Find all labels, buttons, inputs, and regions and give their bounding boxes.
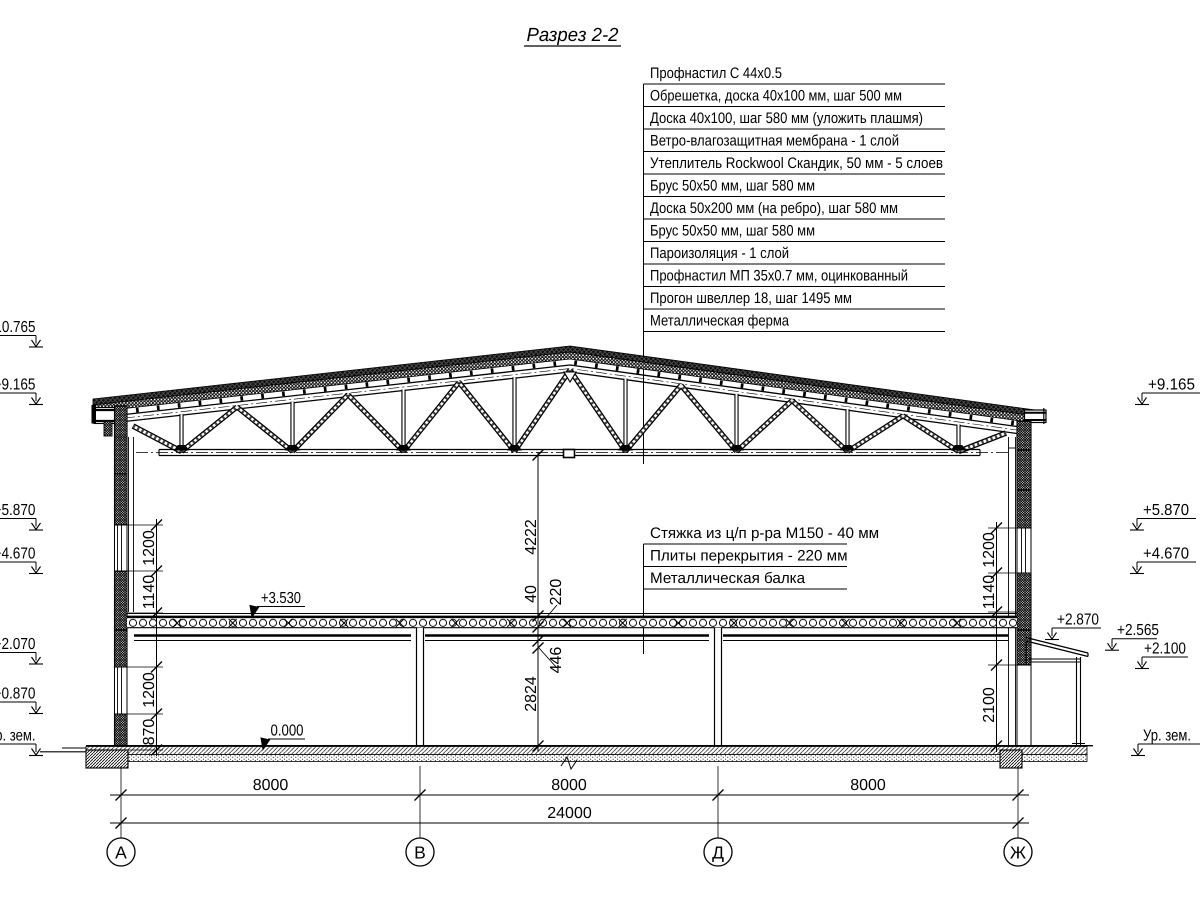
- svg-text:Утеплитель Rockwool Скандик, 5: Утеплитель Rockwool Скандик, 50 мм - 5 с…: [650, 155, 943, 172]
- svg-text:Разрез 2-2: Разрез 2-2: [527, 25, 619, 46]
- svg-text:Профнастил МП 35х0.7 мм, оцинк: Профнастил МП 35х0.7 мм, оцинкованный: [650, 268, 908, 285]
- svg-text:2824: 2824: [523, 676, 540, 712]
- svg-text:1200: 1200: [141, 672, 158, 708]
- svg-text:220: 220: [548, 579, 565, 606]
- svg-text:Обрешетка, доска 40х100 мм, ша: Обрешетка, доска 40х100 мм, шаг 500 мм: [650, 88, 902, 105]
- svg-text:1200: 1200: [981, 532, 998, 568]
- svg-text:446: 446: [548, 647, 565, 674]
- svg-text:Ветро-влагозащитная мембрана -: Ветро-влагозащитная мембрана - 1 слой: [650, 133, 899, 150]
- svg-text:Доска 40х100, шаг 580 мм (улож: Доска 40х100, шаг 580 мм (уложить плашмя…: [650, 110, 923, 127]
- svg-text:Ж: Ж: [1010, 843, 1026, 863]
- svg-text:+0.870: +0.870: [0, 686, 36, 703]
- svg-text:40: 40: [523, 585, 540, 603]
- svg-text:Плиты перекрытия - 220 мм: Плиты перекрытия - 220 мм: [650, 548, 848, 565]
- svg-text:+2.565: +2.565: [1117, 622, 1159, 639]
- svg-text:Брус 50х50 мм, шаг 580 мм: Брус 50х50 мм, шаг 580 мм: [650, 223, 815, 240]
- svg-text:Брус 50х50 мм, шаг 580 мм: Брус 50х50 мм, шаг 580 мм: [650, 178, 815, 195]
- svg-text:В: В: [414, 843, 426, 863]
- svg-text:24000: 24000: [547, 805, 592, 822]
- svg-text:8000: 8000: [850, 777, 886, 794]
- svg-text:Профнастил С 44х0.5: Профнастил С 44х0.5: [650, 65, 782, 82]
- svg-text:+5.870: +5.870: [0, 502, 36, 519]
- svg-text:Д: Д: [712, 843, 724, 863]
- svg-text:+2.100: +2.100: [1144, 641, 1186, 658]
- svg-text:Металлическая ферма: Металлическая ферма: [650, 313, 789, 330]
- svg-text:8000: 8000: [253, 777, 289, 794]
- svg-text:Пароизоляция - 1 слой: Пароизоляция - 1 слой: [650, 245, 789, 262]
- svg-text:Прогон швеллер 18, шаг 1495 мм: Прогон швеллер 18, шаг 1495 мм: [650, 290, 852, 307]
- svg-text:А: А: [115, 843, 127, 863]
- svg-text:Ур. зем.: Ур. зем.: [1143, 728, 1191, 745]
- svg-text:+5.870: +5.870: [1143, 502, 1189, 519]
- svg-text:Ур. зем.: Ур. зем.: [0, 728, 36, 745]
- svg-text:8000: 8000: [551, 777, 587, 794]
- svg-text:+10.765: +10.765: [0, 319, 36, 336]
- svg-text:+2.070: +2.070: [0, 636, 36, 653]
- svg-text:2100: 2100: [981, 687, 998, 723]
- svg-text:870: 870: [141, 719, 158, 746]
- svg-text:Доска 50х200 мм (на ребро), ша: Доска 50х200 мм (на ребро), шаг 580 мм: [650, 200, 898, 217]
- svg-text:+4.670: +4.670: [0, 546, 36, 563]
- svg-text:Стяжка из ц/п р-ра М150 - 40 м: Стяжка из ц/п р-ра М150 - 40 мм: [650, 525, 879, 542]
- svg-text:Металлическая балка: Металлическая балка: [650, 570, 806, 587]
- svg-text:+4.670: +4.670: [1143, 546, 1189, 563]
- svg-text:0.000: 0.000: [271, 723, 304, 740]
- svg-text:1140: 1140: [141, 575, 158, 610]
- svg-text:+9.165: +9.165: [1148, 377, 1195, 394]
- svg-text:+9.165: +9.165: [0, 377, 36, 394]
- svg-text:1140: 1140: [981, 575, 998, 610]
- svg-text:4222: 4222: [523, 519, 540, 555]
- svg-text:1200: 1200: [141, 530, 158, 566]
- svg-text:+2.870: +2.870: [1057, 612, 1099, 629]
- svg-text:+3.530: +3.530: [261, 590, 301, 607]
